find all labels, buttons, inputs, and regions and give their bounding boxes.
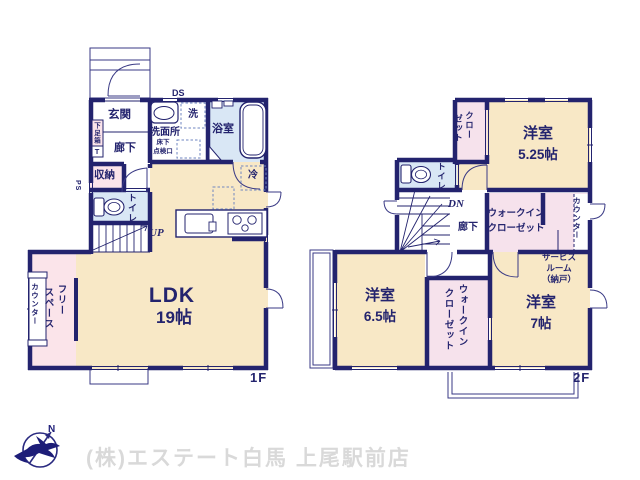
f1-toilet-label: トイレ	[127, 193, 136, 223]
f2-stairs	[397, 190, 450, 252]
f2-service-label-2: ルーム	[546, 264, 571, 273]
f2-fixtures	[401, 165, 431, 183]
f1-ldk-exterior-door	[266, 289, 283, 308]
bathtub	[240, 102, 266, 158]
compass-north-label: N	[48, 424, 55, 435]
f1-up-label: UP	[149, 228, 164, 239]
f1-freespace-label-col2: スペース	[43, 287, 53, 329]
kitchen-faucet	[209, 222, 216, 231]
f1-ds-label: DS	[172, 89, 185, 98]
f1-terrace	[90, 368, 148, 384]
floor-plan-drawing	[0, 0, 640, 480]
f1-bath-label: 浴室	[212, 124, 234, 135]
f1-fridge-label: 冷	[248, 171, 258, 181]
f2-rouka-label: 廊下	[458, 223, 478, 233]
f2-wic-label-1: ウォークイン	[487, 209, 544, 219]
bath-fixture	[212, 101, 222, 108]
f1-counter-label: カウンター	[31, 283, 39, 326]
f2-room65-label: 洋室	[365, 288, 395, 303]
f2-closet-label-col2: ゼット	[454, 114, 463, 143]
f1-sen-label: 洗	[188, 110, 198, 120]
f2-room7-label: 洋室	[526, 295, 556, 310]
f1-stairs	[93, 223, 147, 252]
company-name: (株)エステート白馬 上尾駅前店	[86, 442, 411, 472]
f1-genkan-label: 玄関	[108, 110, 131, 122]
f2-room525-size-label: 5.25帖	[518, 148, 558, 162]
f2-wic2-label-col2: クローゼット	[443, 288, 453, 351]
f2-service-label-1: サービス	[542, 253, 576, 262]
f1-yukashita-label-1: 床下	[157, 140, 170, 147]
f1-senmenjo-label: 洗面所	[150, 128, 180, 138]
f1-storage-label: 収納	[94, 170, 115, 181]
f1-ps-label: PS	[74, 180, 81, 191]
f2-floor-label: 2F	[573, 371, 590, 384]
f2-closet-label-col1: クロー	[465, 111, 474, 140]
f2-room65-door	[427, 252, 452, 277]
toilet-1f	[94, 198, 104, 216]
f2-toilet-label: トイレ	[437, 162, 446, 191]
f2-stair-exterior-door	[384, 201, 397, 214]
floor-plan-page: 玄関 廊下 下足箱 T DS PS 洗面所 洗 床下 点検口 浴室 収納 トイレ…	[0, 0, 640, 480]
f1-yukashita-label-2: 点検口	[153, 149, 173, 156]
f1-freespace-label-col1: フリー	[56, 284, 66, 316]
compass-logo	[14, 432, 60, 467]
f1-ldk-size-label: 19帖	[156, 309, 192, 326]
f1-floor-label: 1F	[250, 371, 267, 384]
f1-ldk-label: LDK	[149, 285, 195, 306]
f1-shoebox-label: 下足箱	[92, 122, 99, 145]
f2-balcony-inner	[452, 372, 574, 394]
f2-service-exterior-door	[590, 204, 605, 219]
underfloor-hatch	[177, 140, 200, 158]
f1-rouka-label: 廊下	[114, 143, 136, 154]
f1-shoebox-t-label: T	[95, 148, 100, 156]
f2-dn-label: DN	[448, 199, 464, 210]
f2-service-label-3: （納戸）	[542, 275, 576, 284]
f1-kitchen-exterior-door	[266, 192, 281, 207]
f1-entrance-door	[108, 64, 140, 96]
f1-porch	[90, 48, 150, 98]
f2-counter-label: カウンター	[573, 197, 581, 240]
f2-wic-label-2: クローゼット	[487, 224, 544, 234]
f2-room65-size-label: 6.5帖	[364, 310, 396, 324]
f2-room525-label: 洋室	[523, 126, 553, 141]
f2-room7-exterior-door	[590, 290, 607, 308]
toilet-2f	[401, 165, 411, 183]
f2-room7-size-label: 7帖	[530, 317, 551, 331]
f2-wic2-label-col1: ウォークイン	[457, 284, 467, 347]
f2-side-balcony-inner	[313, 253, 330, 365]
